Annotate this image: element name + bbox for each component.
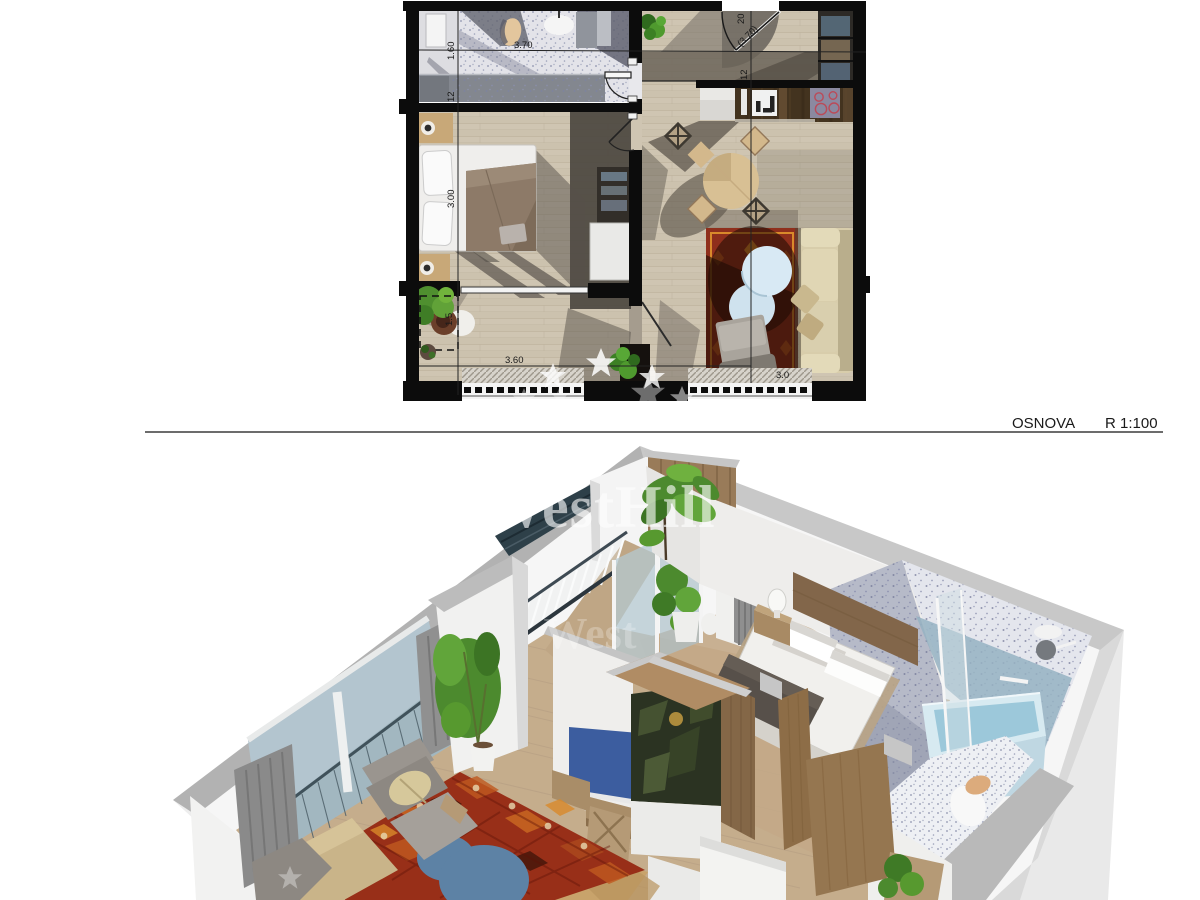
svg-text:3.00: 3.00 (446, 190, 457, 209)
svg-text:WestHill: WestHill (484, 474, 715, 540)
svg-text:3.70: 3.70 (514, 40, 533, 51)
svg-text:West: West (544, 609, 637, 658)
svg-text:12: 12 (446, 91, 457, 102)
svg-text:R 1:100: R 1:100 (1105, 415, 1158, 432)
svg-text:1.60: 1.60 (446, 42, 457, 61)
svg-text:20: 20 (736, 13, 747, 24)
svg-text:1.5: 1.5 (444, 313, 455, 326)
svg-text:3.0: 3.0 (776, 370, 789, 381)
svg-text:12: 12 (739, 69, 750, 80)
svg-text:OSNOVA: OSNOVA (1012, 415, 1075, 432)
svg-text:3.60: 3.60 (505, 355, 524, 366)
